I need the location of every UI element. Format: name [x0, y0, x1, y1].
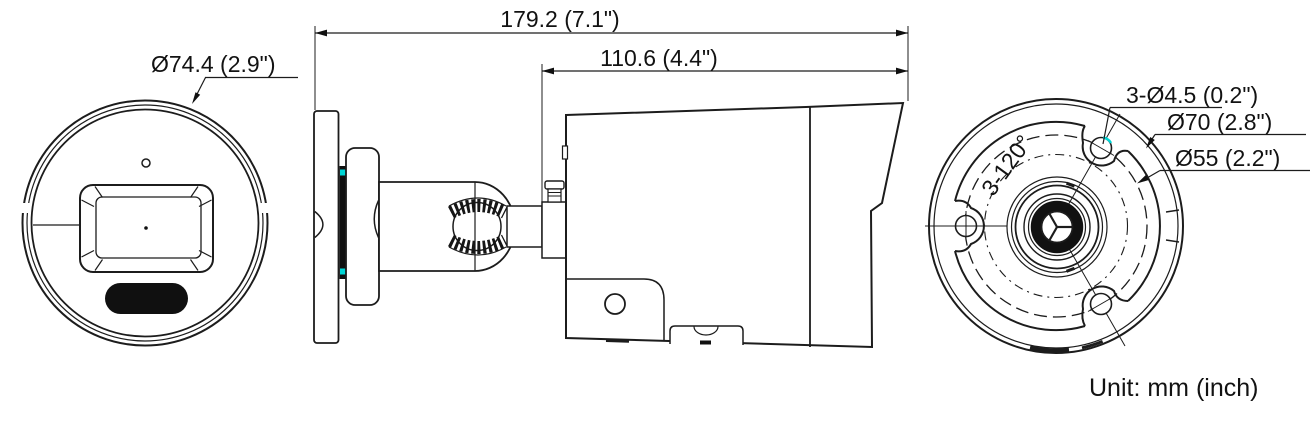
cable-gland-hub [1007, 177, 1107, 277]
front-view [19, 101, 270, 346]
arrowhead [192, 92, 200, 104]
thumbscrew-cap [545, 181, 564, 189]
drawing-canvas: 179.2 (7.1") 110.6 (4.4") Ø74.4 (2.9") 3… [0, 0, 1310, 426]
gasket-mark-top [340, 170, 346, 176]
microphone-hole [142, 159, 150, 167]
ir-illuminator [105, 283, 188, 314]
hole-angle-label: 3-120° [976, 130, 1037, 200]
body-front-step [563, 146, 568, 159]
technical-drawing: 179.2 (7.1") 110.6 (4.4") Ø74.4 (2.9") 3… [0, 0, 1310, 426]
overall-length-label: 179.2 (7.1") [500, 6, 619, 32]
gasket-mark-bottom [340, 269, 346, 275]
lens-center-dot [144, 226, 148, 230]
arrowhead [315, 30, 327, 37]
gasket-strip [340, 166, 347, 279]
mount-base [346, 148, 379, 305]
arrowhead [542, 68, 554, 75]
ring-seam-left [19, 203, 30, 213]
outer-circle-label: Ø70 (2.8") [1167, 109, 1272, 135]
screw-holes-label: 3-Ø4.5 (0.2") [1126, 82, 1258, 108]
latch-tick [700, 341, 711, 345]
hub-tick-top [1067, 183, 1075, 186]
ring-seam-right [260, 203, 270, 213]
arrowhead [896, 30, 908, 37]
camera-body [566, 103, 903, 347]
arrowhead [896, 68, 908, 75]
panel-bottom-tick [606, 341, 629, 342]
unit-note: Unit: mm (inch) [1089, 374, 1258, 402]
stem-bracket [542, 202, 567, 258]
inner-circle-label: Ø55 (2.2") [1175, 145, 1280, 171]
rim-shade-arc-1 [1030, 348, 1069, 351]
front-length-label: 110.6 (4.4") [600, 45, 718, 71]
hinge-stem [507, 206, 542, 247]
wall-plate [314, 111, 339, 343]
side-view [314, 103, 903, 347]
mount-arm [379, 182, 515, 271]
hub-tick-bottom [1067, 268, 1075, 271]
rear-view [925, 99, 1183, 353]
front-diameter-label: Ø74.4 (2.9") [151, 51, 276, 77]
